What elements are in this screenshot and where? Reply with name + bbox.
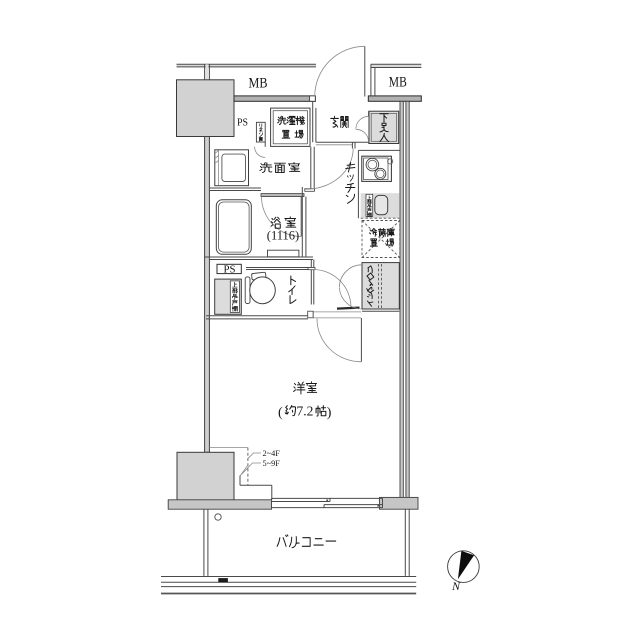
- svg-text:MB: MB: [249, 75, 268, 91]
- svg-text:(1116): (1116): [267, 229, 299, 243]
- svg-text:PS: PS: [237, 116, 248, 128]
- svg-text:5~9F: 5~9F: [263, 459, 281, 468]
- svg-text:2~4F: 2~4F: [263, 449, 281, 458]
- svg-text:N: N: [451, 579, 461, 593]
- svg-text:(: (: [278, 405, 283, 420]
- svg-text:7.2: 7.2: [297, 404, 314, 419]
- svg-text:MB: MB: [389, 75, 407, 91]
- svg-text:PS: PS: [224, 264, 236, 276]
- svg-text:): ): [327, 405, 332, 420]
